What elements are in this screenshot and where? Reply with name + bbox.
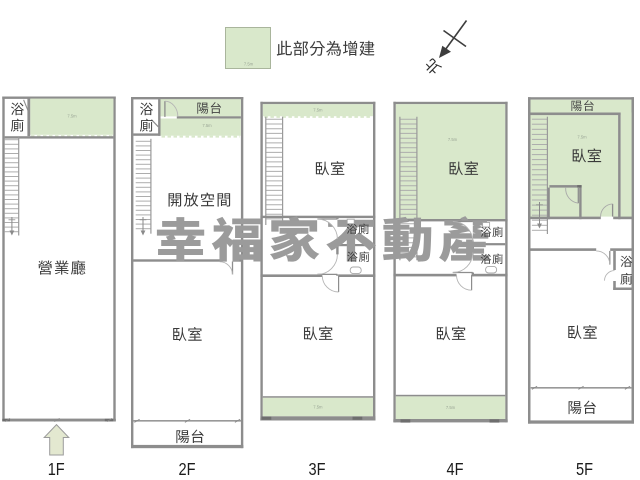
svg-text:2F: 2F — [179, 459, 196, 479]
svg-text:7.5m: 7.5m — [313, 107, 323, 112]
svg-text:7.5m: 7.5m — [202, 123, 212, 128]
svg-text:5F: 5F — [576, 459, 593, 479]
svg-text:7.5m: 7.5m — [446, 405, 456, 410]
svg-text:4F: 4F — [447, 459, 464, 479]
svg-text:7.5m: 7.5m — [244, 62, 254, 67]
svg-text:3F: 3F — [309, 459, 326, 479]
svg-text:7.5m: 7.5m — [448, 137, 458, 142]
svg-text:7.5m: 7.5m — [313, 405, 323, 410]
svg-text:1F: 1F — [48, 459, 65, 479]
svg-text:7.5m: 7.5m — [67, 114, 77, 119]
svg-text:7.5m: 7.5m — [577, 135, 587, 140]
